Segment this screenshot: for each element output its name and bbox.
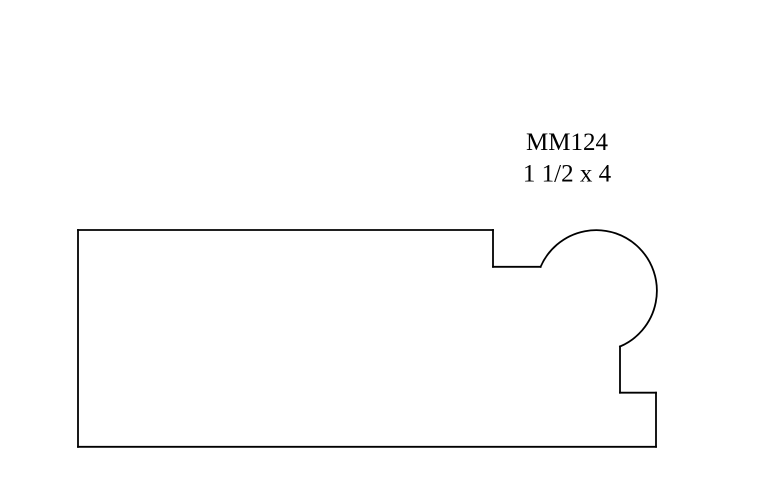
- svg-text:MM124: MM124: [526, 129, 608, 156]
- svg-text:1 1/2 x 4: 1 1/2 x 4: [523, 161, 612, 188]
